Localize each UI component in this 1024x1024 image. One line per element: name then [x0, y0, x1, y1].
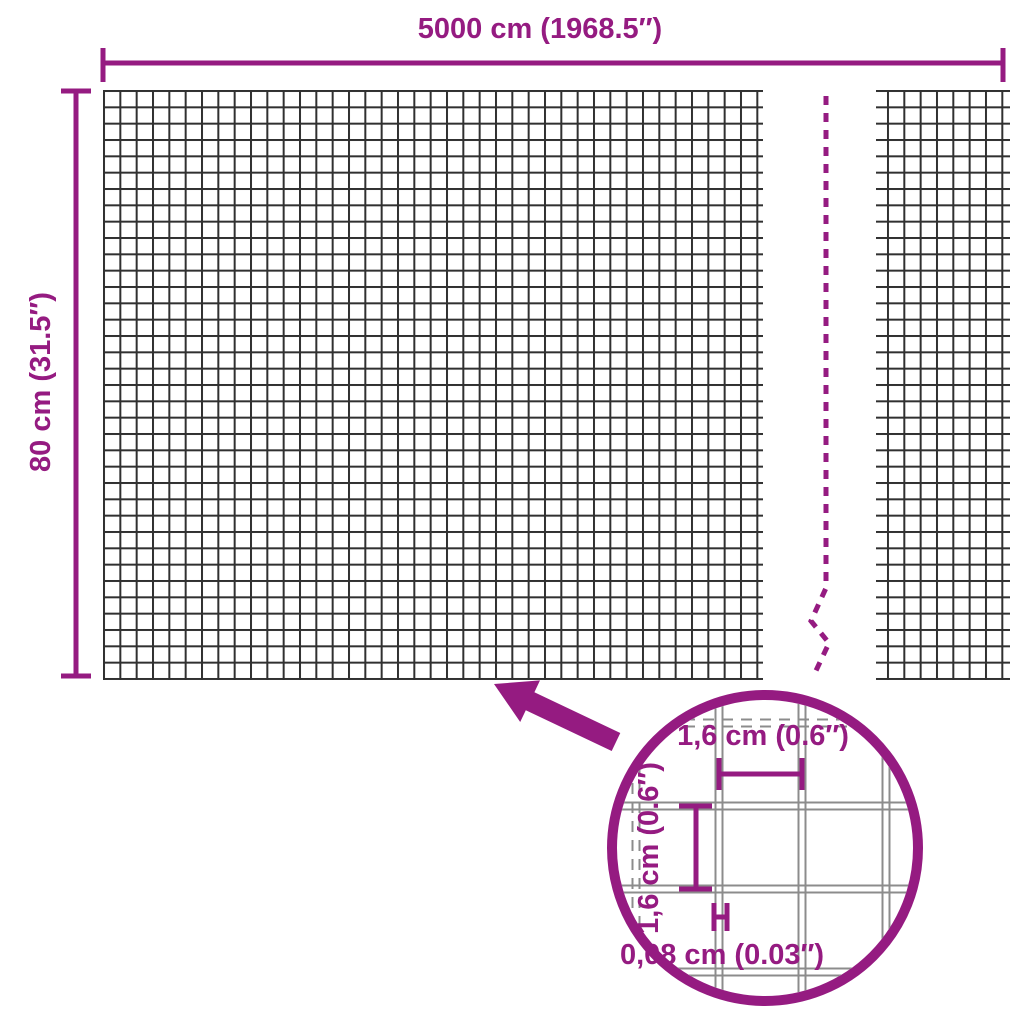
- zoom-arrow-icon: [494, 680, 620, 751]
- mesh-width-label: 1,6 cm (0.6″): [677, 720, 849, 752]
- mesh-grid-left: [103, 90, 763, 680]
- mesh-panel-left: [103, 90, 763, 680]
- mesh-grid-right: [876, 90, 1010, 680]
- diagram-svg: 5000 cm (1968.5″) 80 cm (31.5″): [0, 0, 1024, 1024]
- height-label: 80 cm (31.5″): [25, 292, 57, 472]
- height-dimension: 80 cm (31.5″): [25, 91, 91, 676]
- wire-thickness-label: 0,08 cm (0.03″): [620, 939, 824, 971]
- magnifier: 1,6 cm (0.6″) 1,6 cm (0.6″) 0,08 cm (0.0…: [608, 688, 922, 1008]
- product-dimension-diagram: 5000 cm (1968.5″) 80 cm (31.5″): [0, 0, 1024, 1024]
- width-dimension: 5000 cm (1968.5″): [103, 13, 1003, 82]
- break-line-path: [811, 96, 829, 677]
- zoom-arrow: [494, 680, 620, 751]
- width-label: 5000 cm (1968.5″): [418, 13, 662, 45]
- mesh-height-label: 1,6 cm (0.6″): [633, 762, 665, 934]
- break-line: [811, 96, 829, 677]
- mesh-panel-right: [876, 90, 1010, 680]
